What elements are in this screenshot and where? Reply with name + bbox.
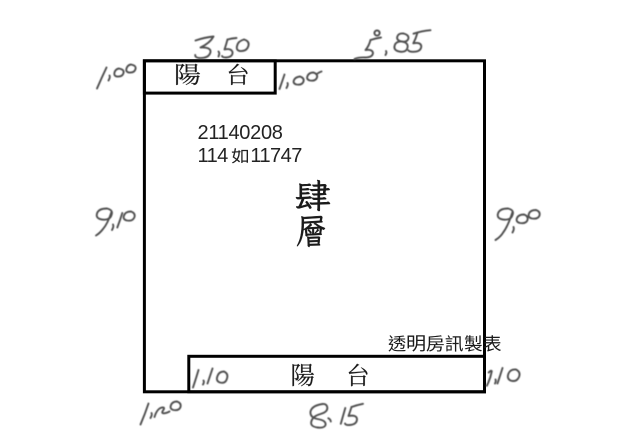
svg-text:11747: 11747 <box>250 145 302 167</box>
svg-text:114: 114 <box>198 145 229 167</box>
svg-text:21140208: 21140208 <box>198 122 283 144</box>
